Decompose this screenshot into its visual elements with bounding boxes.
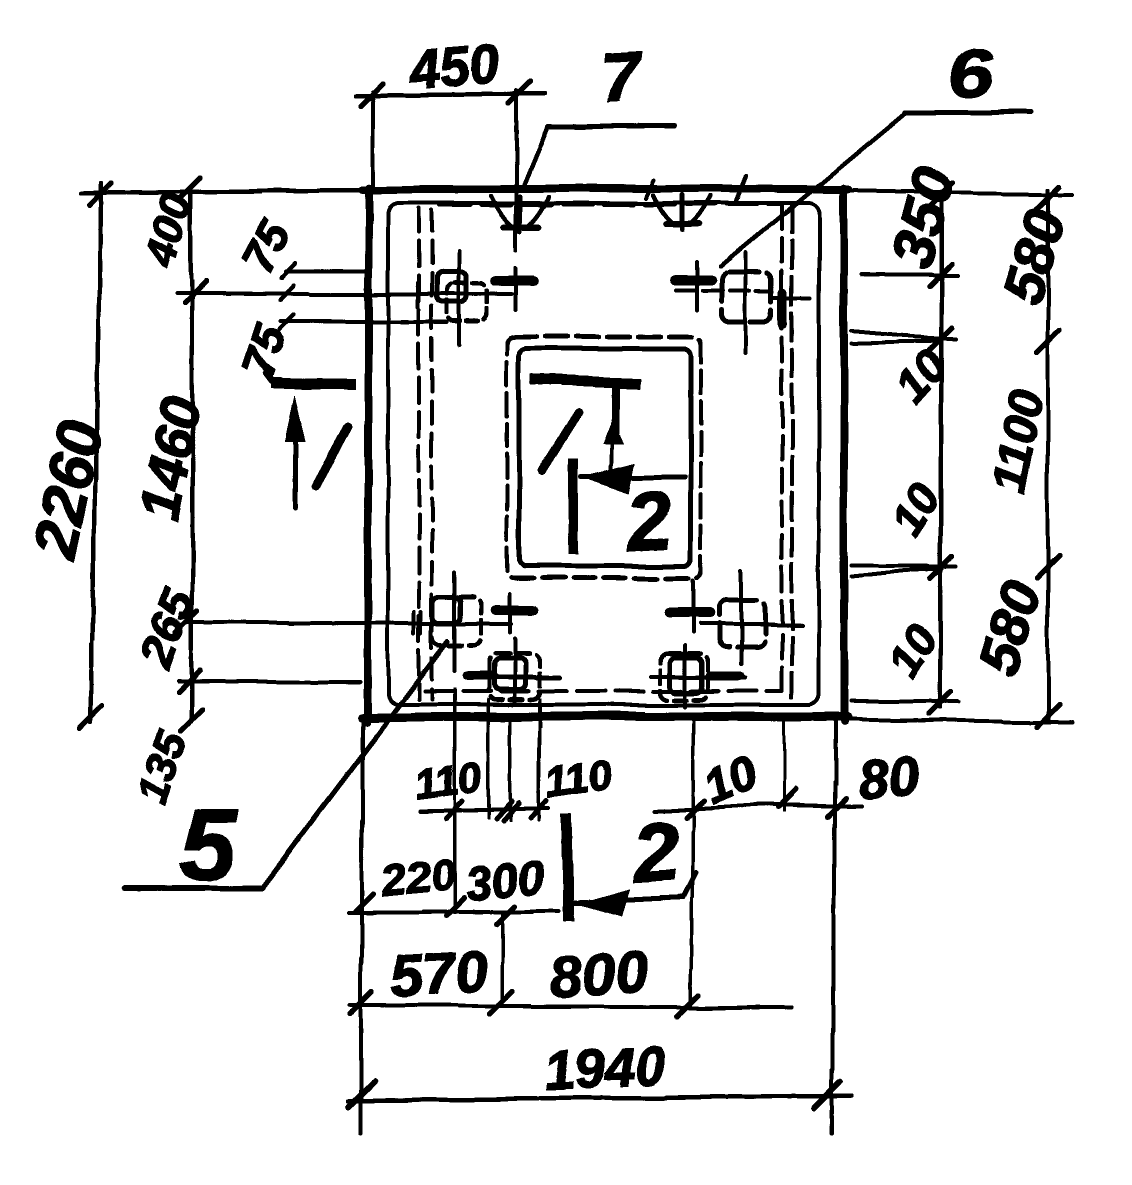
svg-text:6: 6: [946, 34, 998, 113]
svg-text:1940: 1940: [542, 1034, 666, 1102]
svg-text:2: 2: [621, 473, 676, 569]
svg-text:300: 300: [464, 850, 548, 911]
svg-text:110: 110: [412, 753, 485, 809]
svg-text:110: 110: [542, 750, 615, 806]
svg-text:2: 2: [628, 806, 682, 900]
svg-text:570: 570: [388, 938, 489, 1010]
svg-text:5: 5: [180, 790, 238, 902]
svg-text:800: 800: [547, 939, 650, 1011]
svg-text:220: 220: [378, 849, 458, 906]
svg-text:80: 80: [855, 744, 923, 812]
svg-text:450: 450: [406, 33, 502, 101]
